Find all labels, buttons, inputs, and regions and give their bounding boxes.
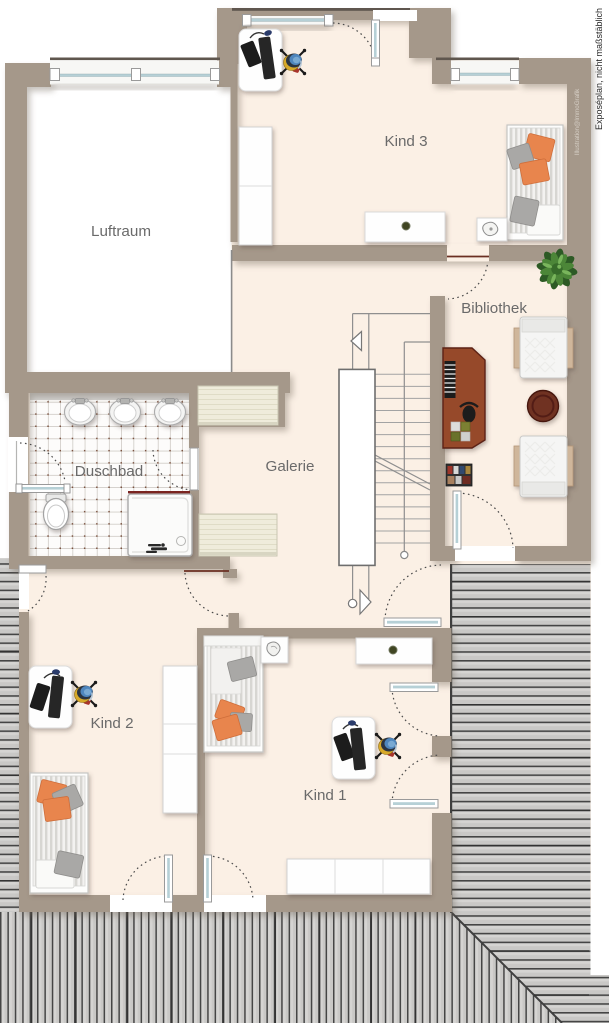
svg-text:Kind 2: Kind 2: [90, 715, 133, 732]
svg-text:Galerie: Galerie: [266, 458, 315, 475]
svg-text:Luftraum: Luftraum: [91, 223, 151, 240]
svg-text:Kind 1: Kind 1: [303, 787, 346, 804]
svg-text:Bibliothek: Bibliothek: [461, 300, 527, 317]
svg-text:Exposéplan, nicht maßstäblich: Exposéplan, nicht maßstäblich: [594, 8, 604, 130]
svg-text:Kind 3: Kind 3: [384, 133, 427, 150]
svg-text:Illustration@ImmoGrafik: Illustration@ImmoGrafik: [574, 88, 581, 155]
svg-text:Duschbad: Duschbad: [75, 463, 143, 480]
